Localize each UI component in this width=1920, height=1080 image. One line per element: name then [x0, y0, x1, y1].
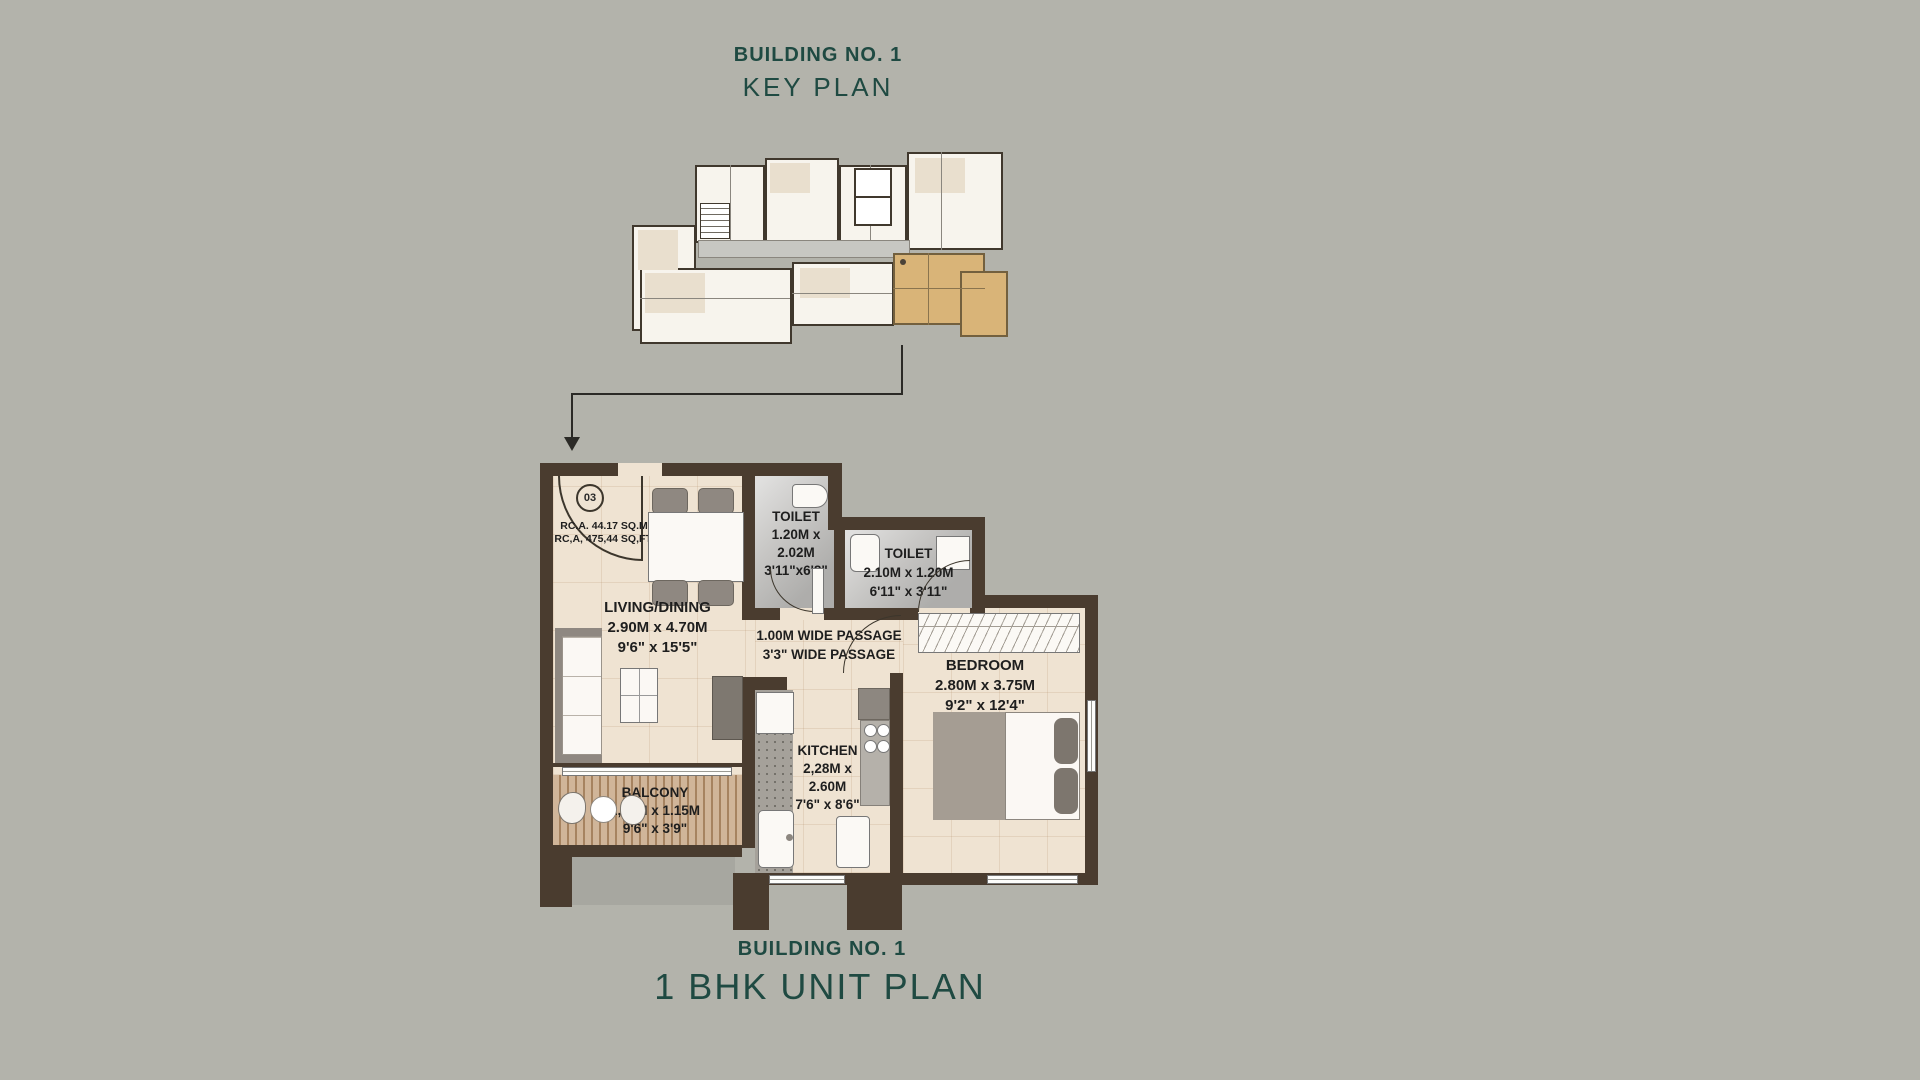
balcony-slider-window — [562, 767, 732, 776]
area-sqm: RC.A. 44.17 SQ.M — [552, 520, 656, 533]
leader-line-vertical-left — [571, 393, 573, 438]
key-plan-highlighted-unit-step — [960, 271, 1008, 337]
kitchen-label: KITCHEN 2,28M x 2.60M 7'6" x 8'6" — [770, 742, 885, 814]
bedroom-window-bottom — [987, 875, 1078, 884]
arrow-down-icon — [564, 437, 580, 451]
toilet1-metric2: 2.02M — [754, 544, 838, 562]
key-plan-partition — [941, 152, 942, 250]
key-plan — [630, 148, 1010, 348]
balcony-imperial: 9'6" x 3'9" — [575, 820, 735, 838]
key-plan-partition — [792, 293, 892, 294]
toilet1-name: TOILET — [754, 508, 838, 526]
key-plan-partition — [640, 298, 790, 299]
key-plan-highlight-partition — [928, 253, 929, 325]
key-plan-unit-door-dot — [900, 259, 906, 265]
leader-line-vertical-right — [901, 345, 903, 395]
area-sqft: RC,A, 475,44 SQ,FT, — [552, 533, 656, 546]
key-plan-room-tint — [770, 163, 810, 193]
kitchen-metric1: 2,28M x — [770, 760, 885, 778]
unit-plan-title: 1 BHK UNIT PLAN — [654, 966, 985, 1008]
key-plan-lift-core — [854, 168, 892, 226]
key-plan-title: KEY PLAN — [743, 72, 894, 103]
bed-blanket — [933, 712, 1005, 820]
dining-chair — [698, 488, 734, 514]
wall — [828, 517, 985, 530]
leader-line-horizontal — [571, 393, 903, 395]
toilet1-wc — [792, 484, 828, 508]
key-plan-building-title: BUILDING NO. 1 — [734, 44, 902, 67]
unit-number: 03 — [584, 492, 596, 504]
key-plan-partition — [730, 165, 731, 240]
kitchen-appliance — [836, 816, 870, 868]
bedroom-name: BEDROOM — [905, 656, 1065, 676]
key-plan-room-tint — [645, 273, 705, 313]
sofa-seat — [562, 636, 602, 755]
wall — [890, 673, 903, 885]
dining-chair — [652, 488, 688, 514]
lower-slab-shadow — [553, 857, 735, 905]
tv-unit — [712, 676, 743, 740]
wall — [662, 463, 840, 476]
wall — [742, 677, 787, 690]
toilet2-name: TOILET — [846, 544, 971, 563]
wall — [847, 873, 902, 930]
balcony-table — [590, 796, 617, 823]
wardrobe — [918, 613, 1080, 653]
bed-pillow — [1054, 768, 1078, 814]
balcony-chair — [620, 795, 646, 825]
bedroom-window-right — [1087, 700, 1096, 772]
bedroom-metric: 2.80M x 3.75M — [905, 676, 1065, 696]
unit-number-circle: 03 — [576, 484, 604, 512]
toilet1-door-leaf — [812, 568, 824, 614]
key-plan-room-tint — [915, 158, 965, 193]
key-plan-room-tint — [638, 230, 678, 270]
kitchen-window — [769, 875, 845, 884]
bedroom-label: BEDROOM 2.80M x 3.75M 9'2" x 12'4" — [905, 656, 1065, 716]
entrance-door-leaf — [641, 476, 643, 561]
bed-pillow — [1054, 718, 1078, 764]
hob-burner — [864, 724, 877, 737]
toilet1-metric1: 1.20M x — [754, 526, 838, 544]
wall — [742, 690, 755, 848]
entrance-threshold — [618, 463, 662, 476]
unit-plan: 03 RC.A. 44.17 SQ.M RC,A, 475,44 SQ,FT, … — [540, 460, 1120, 970]
kitchen-counter-pillar — [858, 688, 890, 720]
wall — [553, 845, 742, 857]
coffee-table — [620, 668, 658, 723]
key-plan-corridor — [698, 240, 910, 258]
floor-plan-sheet: BUILDING NO. 1 KEY PLAN — [0, 0, 1920, 1080]
fridge — [756, 692, 794, 734]
key-plan-highlight-partition — [893, 288, 985, 289]
hob-burner — [877, 724, 890, 737]
key-plan-stair-core — [700, 203, 730, 239]
kitchen-metric2: 2.60M — [770, 778, 885, 796]
balcony-chair — [558, 792, 586, 824]
wall — [972, 595, 1098, 608]
unit-plan-building-title: BUILDING NO. 1 — [738, 938, 906, 961]
living-name: LIVING/DINING — [570, 598, 745, 618]
wall — [733, 873, 769, 930]
kitchen-name: KITCHEN — [770, 742, 885, 760]
dining-table — [648, 512, 744, 582]
kitchen-faucet — [786, 834, 793, 841]
area-label: RC.A. 44.17 SQ.M RC,A, 475,44 SQ,FT, — [552, 520, 656, 546]
